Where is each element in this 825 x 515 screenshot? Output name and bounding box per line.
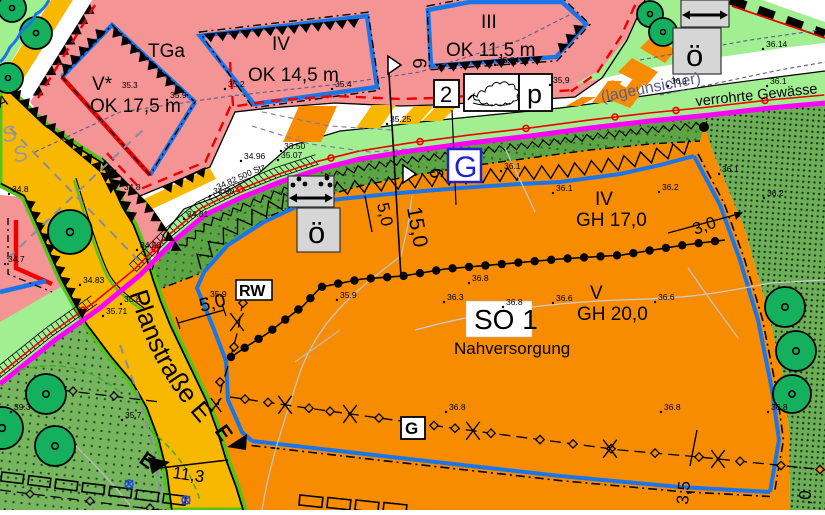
svg-text:36.2: 36.2	[767, 188, 784, 198]
svg-text:IV: IV	[595, 189, 613, 210]
svg-text:V: V	[590, 283, 603, 304]
svg-text:36.1: 36.1	[556, 183, 573, 193]
svg-text:36.8: 36.8	[771, 402, 788, 412]
svg-text:36.14: 36.14	[766, 39, 788, 49]
svg-text:35.7: 35.7	[125, 410, 142, 420]
svg-text:,0: ,0	[795, 490, 815, 506]
svg-text:36.3: 36.3	[447, 292, 464, 302]
svg-text:ö: ö	[308, 215, 325, 250]
svg-text:35.8: 35.8	[124, 294, 141, 304]
svg-text:3,5: 3,5	[673, 480, 694, 505]
svg-text:34.8: 34.8	[124, 182, 141, 192]
svg-text:35,9: 35,9	[553, 75, 570, 85]
svg-text:G: G	[405, 419, 418, 438]
svg-text:35.71: 35.71	[106, 306, 128, 316]
svg-text:35.07: 35.07	[281, 150, 303, 160]
svg-text:OK 11,5 m: OK 11,5 m	[446, 40, 535, 61]
svg-text:36.8: 36.8	[664, 402, 681, 412]
svg-text:34.50: 34.50	[140, 240, 162, 250]
svg-text:Nahversorgung: Nahversorgung	[454, 339, 570, 358]
svg-text:36.2: 36.2	[662, 182, 679, 192]
svg-text:35.25: 35.25	[390, 114, 412, 124]
svg-text:35.9: 35.9	[340, 290, 357, 300]
svg-text:36.8: 36.8	[506, 297, 523, 307]
svg-text:33.50: 33.50	[284, 141, 306, 151]
svg-text:35.9: 35.9	[210, 289, 227, 299]
svg-text:2: 2	[440, 82, 452, 107]
svg-text:36.1: 36.1	[671, 76, 688, 86]
svg-text:TGa: TGa	[148, 41, 185, 62]
svg-text:6: 6	[425, 168, 446, 179]
svg-text:V*: V*	[92, 74, 113, 95]
svg-text:p: p	[527, 79, 542, 109]
svg-text:34.8: 34.8	[12, 184, 29, 194]
svg-text:35.84: 35.84	[498, 55, 520, 65]
svg-text:35.2: 35.2	[228, 79, 245, 89]
svg-text:35.4: 35.4	[335, 79, 352, 89]
svg-text:36.6: 36.6	[556, 293, 573, 303]
svg-text:34.96: 34.96	[244, 151, 266, 161]
svg-text:36.8: 36.8	[472, 273, 489, 283]
svg-text:36.1: 36.1	[722, 164, 739, 174]
svg-text:36.6: 36.6	[658, 292, 675, 302]
svg-text:OK 14,5 m: OK 14,5 m	[248, 65, 339, 86]
svg-text:RW: RW	[239, 283, 266, 300]
svg-text:GH 17,0: GH 17,0	[576, 210, 647, 231]
svg-text:G: G	[454, 151, 477, 184]
svg-text:35.9: 35.9	[170, 90, 187, 100]
svg-text:SO 1: SO 1	[474, 304, 538, 335]
svg-text:6: 6	[408, 58, 429, 69]
svg-text:36.1: 36.1	[770, 76, 787, 86]
svg-text:III: III	[481, 12, 497, 33]
svg-text:IV: IV	[272, 34, 290, 55]
svg-text:ö: ö	[686, 38, 703, 73]
svg-text:36.1: 36.1	[504, 161, 521, 171]
svg-text:34.7: 34.7	[8, 254, 25, 264]
svg-text:39.3: 39.3	[14, 402, 31, 412]
svg-text:35.3: 35.3	[122, 81, 138, 90]
svg-text:34.83: 34.83	[83, 275, 105, 285]
svg-text:GH 20,0: GH 20,0	[577, 304, 648, 325]
svg-text:34.81: 34.81	[187, 209, 209, 219]
svg-text:36.8: 36.8	[449, 402, 466, 412]
